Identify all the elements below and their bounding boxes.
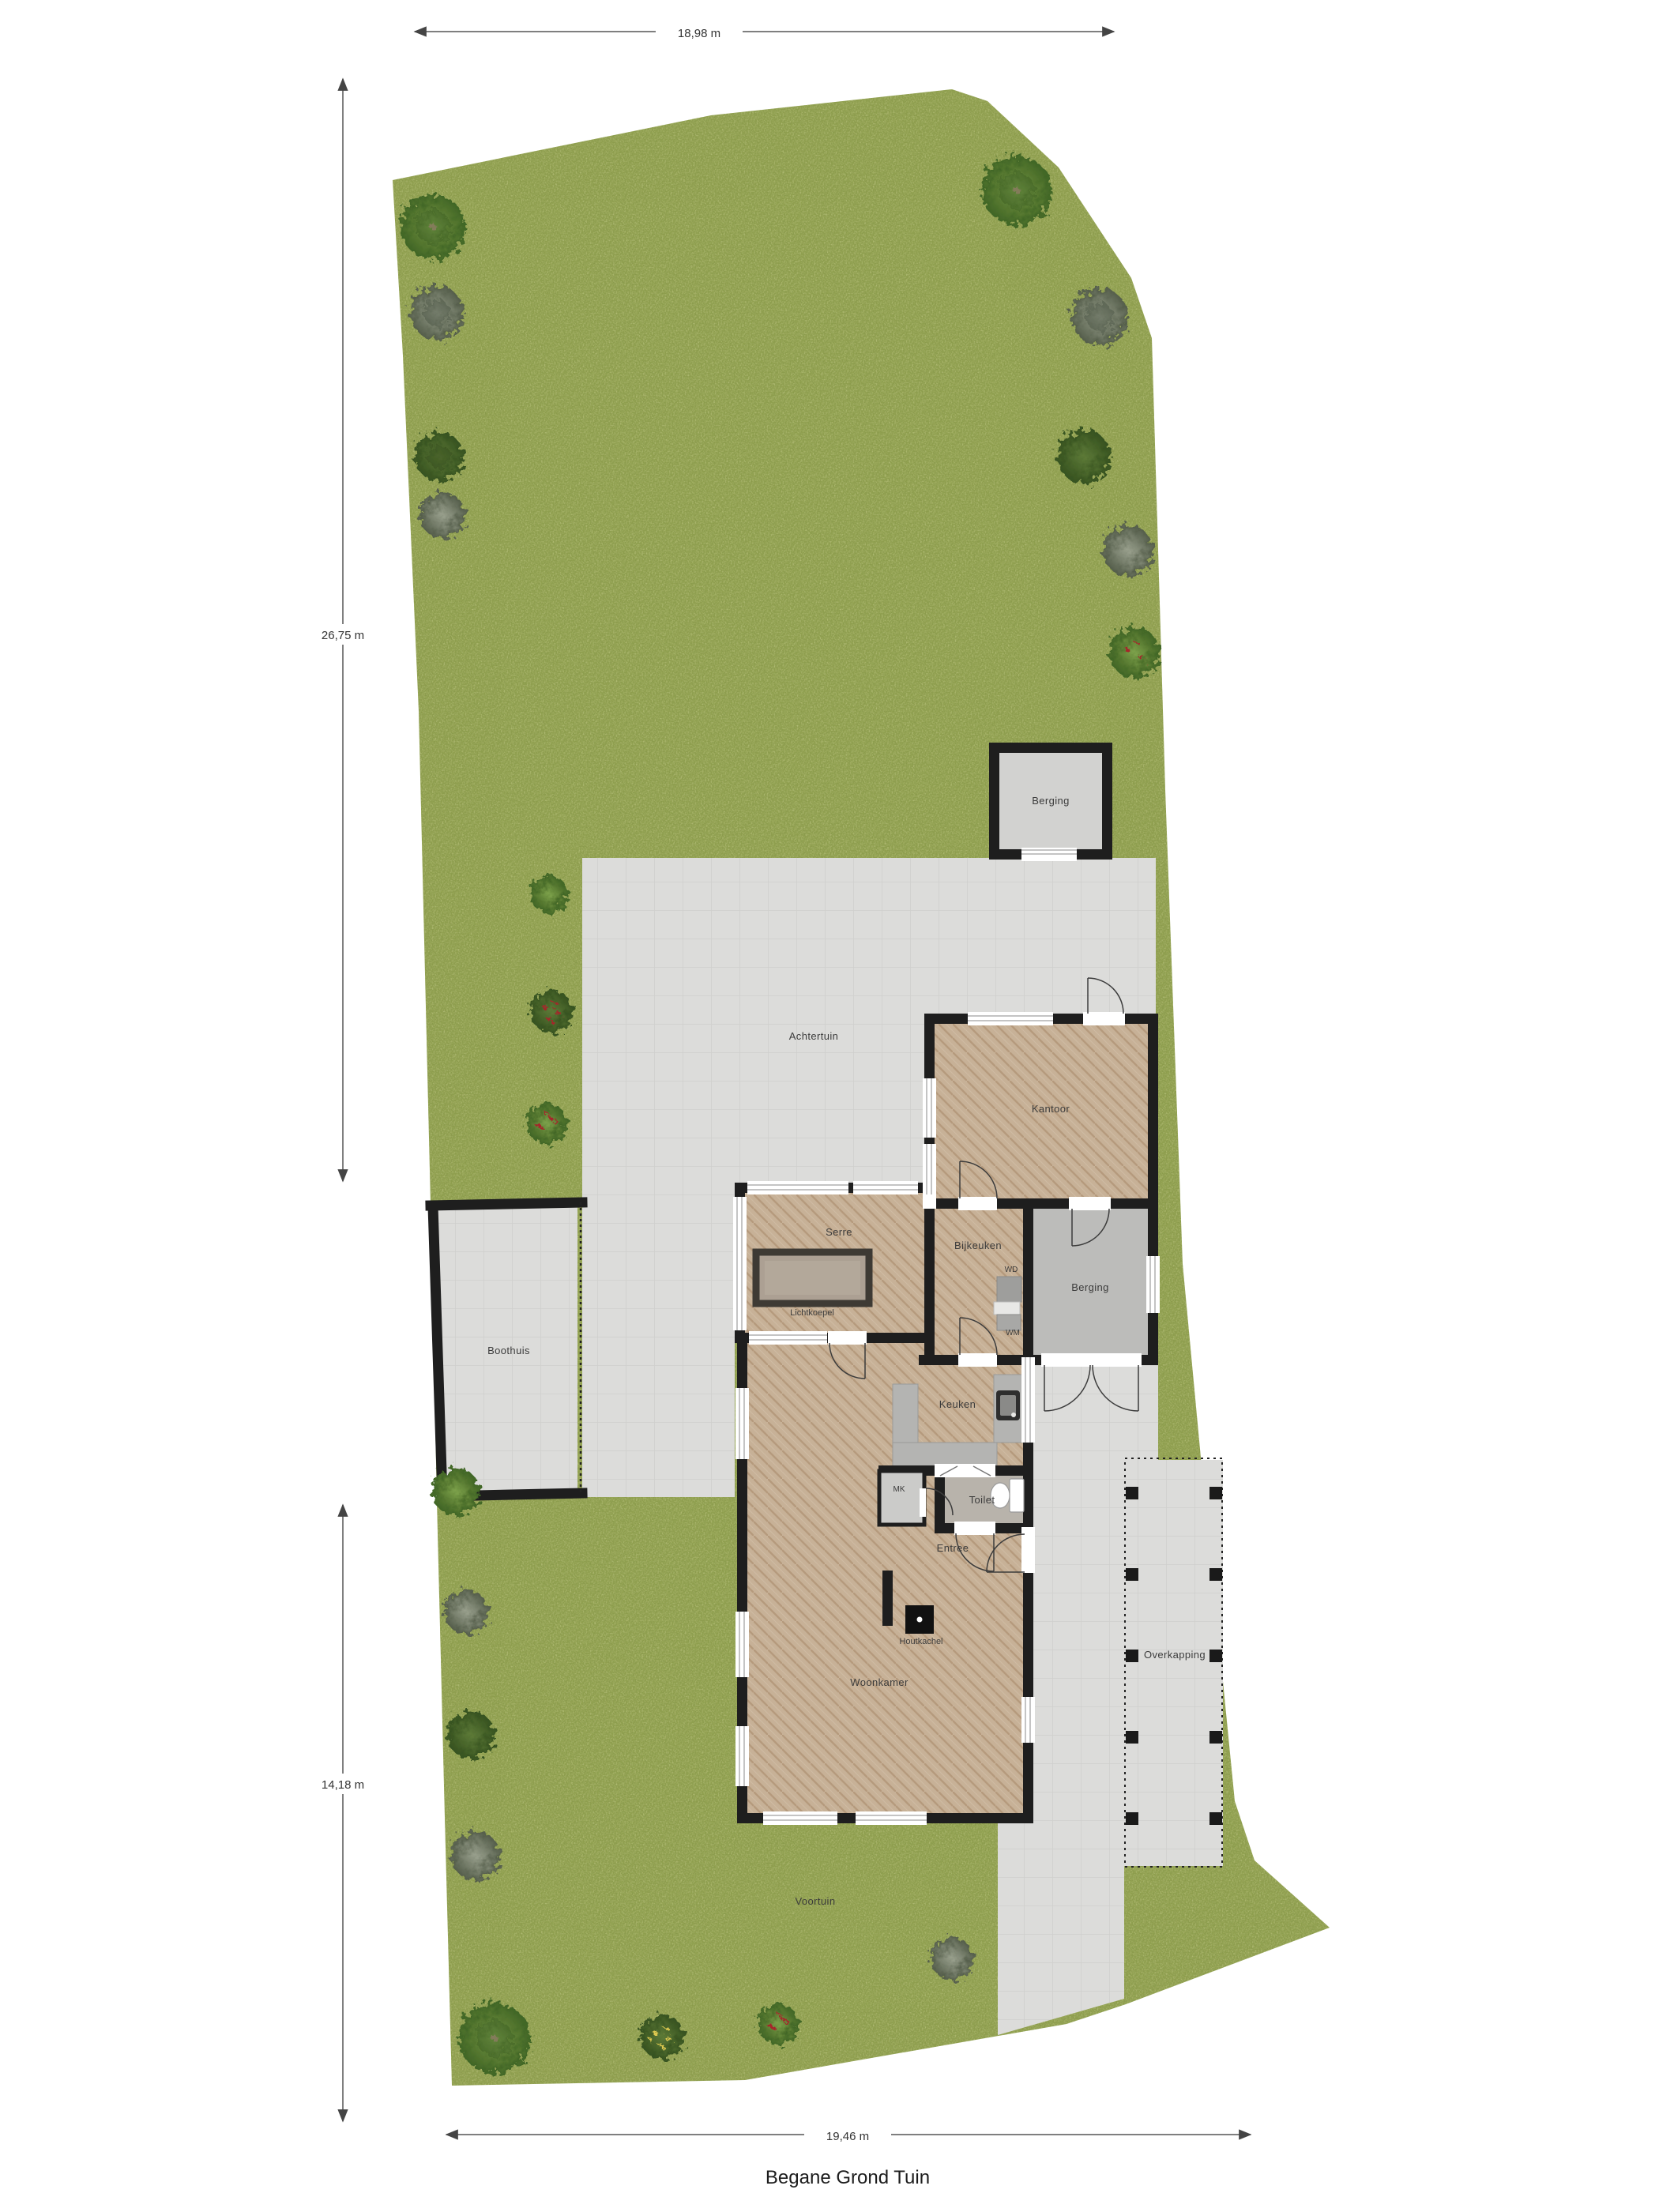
room-label-boothuis: Boothuis <box>487 1345 530 1356</box>
label-lichtkoepel: Lichtkoepel <box>790 1308 834 1318</box>
dimension-left-lower-label: 14,18 m <box>322 1778 364 1792</box>
dimension-top-label: 18,98 m <box>678 27 720 40</box>
room-label-entree: Entree <box>937 1542 969 1554</box>
houtkachel-stove <box>905 1605 934 1634</box>
floor-plan-page: Berging Achtertuin Kantoor Serre Bijkeuk… <box>0 0 1659 2212</box>
room-label-bijkeuken: Bijkeuken <box>954 1240 1002 1251</box>
bush <box>432 1468 480 1515</box>
bush <box>451 1831 500 1880</box>
room-label-overkapping: Overkapping <box>1144 1649 1206 1661</box>
apple-tree <box>1109 627 1160 678</box>
room-label-kantoor: Kantoor <box>1032 1103 1070 1115</box>
room-label-woonkamer: Woonkamer <box>850 1676 908 1688</box>
flower-bush <box>640 2014 684 2059</box>
dimension-bottom-label: 19,46 m <box>826 2130 869 2143</box>
bush <box>1057 430 1111 483</box>
area-label-voortuin: Voortuin <box>796 1895 836 1907</box>
label-wm: WM <box>1006 1329 1020 1337</box>
bush <box>401 194 465 259</box>
room-label-berging: Berging <box>1071 1281 1109 1293</box>
bush <box>1071 288 1128 345</box>
bush <box>415 432 464 481</box>
bush <box>410 286 464 340</box>
bush <box>982 156 1051 225</box>
lichtkoepel <box>756 1252 869 1303</box>
shed-door <box>1021 848 1077 861</box>
room-label-serre: Serre <box>826 1226 852 1238</box>
apple-tree <box>526 1103 567 1144</box>
bush <box>419 492 465 538</box>
label-mk: MK <box>893 1485 905 1494</box>
bush <box>530 875 568 913</box>
room-label-toilet: Toilet <box>969 1494 995 1506</box>
label-houtkachel: Houtkachel <box>899 1637 942 1646</box>
bush <box>459 2003 530 2074</box>
dimension-left-upper-label: 26,75 m <box>322 629 364 642</box>
apple-tree <box>758 2003 799 2045</box>
laundry-appliances <box>994 1277 1021 1330</box>
room-label-berging-top: Berging <box>1032 795 1070 807</box>
bush <box>931 1937 973 1980</box>
room-label-keuken: Keuken <box>939 1398 976 1410</box>
bush <box>447 1711 495 1759</box>
page-title: Begane Grond Tuin <box>766 2167 930 2188</box>
label-wd: WD <box>1005 1266 1018 1274</box>
apple-tree <box>530 990 573 1033</box>
kitchen-sink <box>996 1390 1020 1420</box>
floor-plan-canvas: Berging Achtertuin Kantoor Serre Bijkeuk… <box>0 0 1659 2212</box>
bush <box>444 1589 488 1634</box>
bush <box>1103 525 1153 576</box>
area-label-achtertuin: Achtertuin <box>789 1030 839 1042</box>
